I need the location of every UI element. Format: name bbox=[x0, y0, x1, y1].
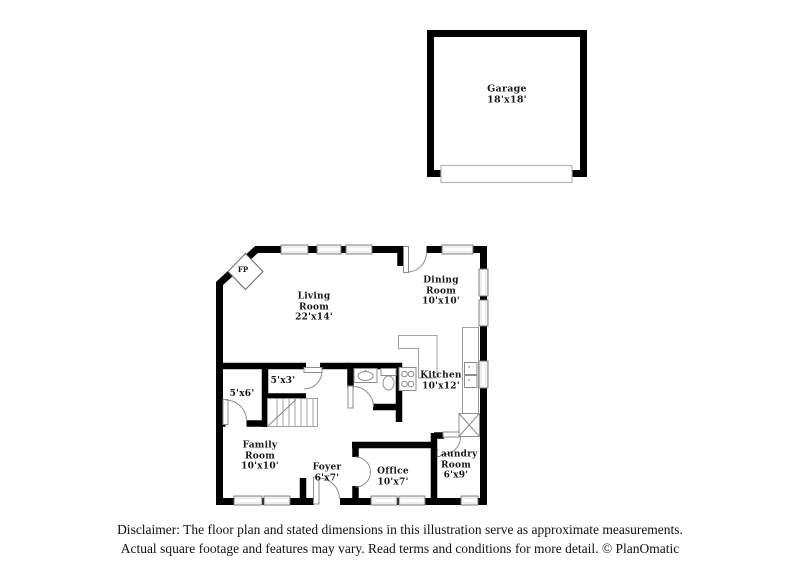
room-label-family: Family Room 10'x10' bbox=[241, 440, 279, 472]
room-label-office: Office 10'x7' bbox=[377, 467, 409, 488]
room-label-dining: Dining Room 10'x10' bbox=[422, 275, 460, 307]
bathroom-sink-icon bbox=[354, 369, 377, 383]
garage-structure bbox=[431, 34, 584, 183]
kitchen-sink-icon bbox=[465, 363, 478, 388]
room-label-living: Living Room 22'x14' bbox=[295, 291, 333, 323]
garage-door-icon bbox=[441, 166, 572, 183]
room-label-foyer: Foyer 6'x7' bbox=[313, 463, 342, 484]
stove-icon bbox=[399, 368, 416, 391]
door-leaf bbox=[348, 386, 353, 408]
door-leaf bbox=[404, 247, 409, 273]
disclaimer-line-1: Disclaimer: The floor plan and stated di… bbox=[0, 520, 800, 539]
stairs-icon bbox=[268, 399, 318, 427]
disclaimer: Disclaimer: The floor plan and stated di… bbox=[0, 520, 800, 558]
room-label-garage: Garage 18'x18' bbox=[487, 85, 527, 106]
disclaimer-line-2: Actual square footage and features may v… bbox=[0, 539, 800, 558]
room-label-closet-5x3: 5'x3' bbox=[271, 376, 296, 387]
floor-plan-page: Garage 18'x18' Living Room 22'x14' Dinin… bbox=[0, 0, 800, 582]
room-label-closet-5x6: 5'x6' bbox=[230, 389, 255, 400]
room-label-laundry: Laundry Room 6'x9' bbox=[434, 449, 477, 481]
door-leaf bbox=[223, 400, 228, 425]
floor-plan-drawing bbox=[0, 0, 800, 582]
door-leaf bbox=[443, 432, 460, 437]
washer-dryer-icon bbox=[459, 414, 480, 437]
room-label-kitchen: Kitchen 10'x12' bbox=[420, 371, 461, 392]
door-leaf bbox=[304, 368, 322, 373]
fireplace-label: FP bbox=[238, 265, 248, 276]
